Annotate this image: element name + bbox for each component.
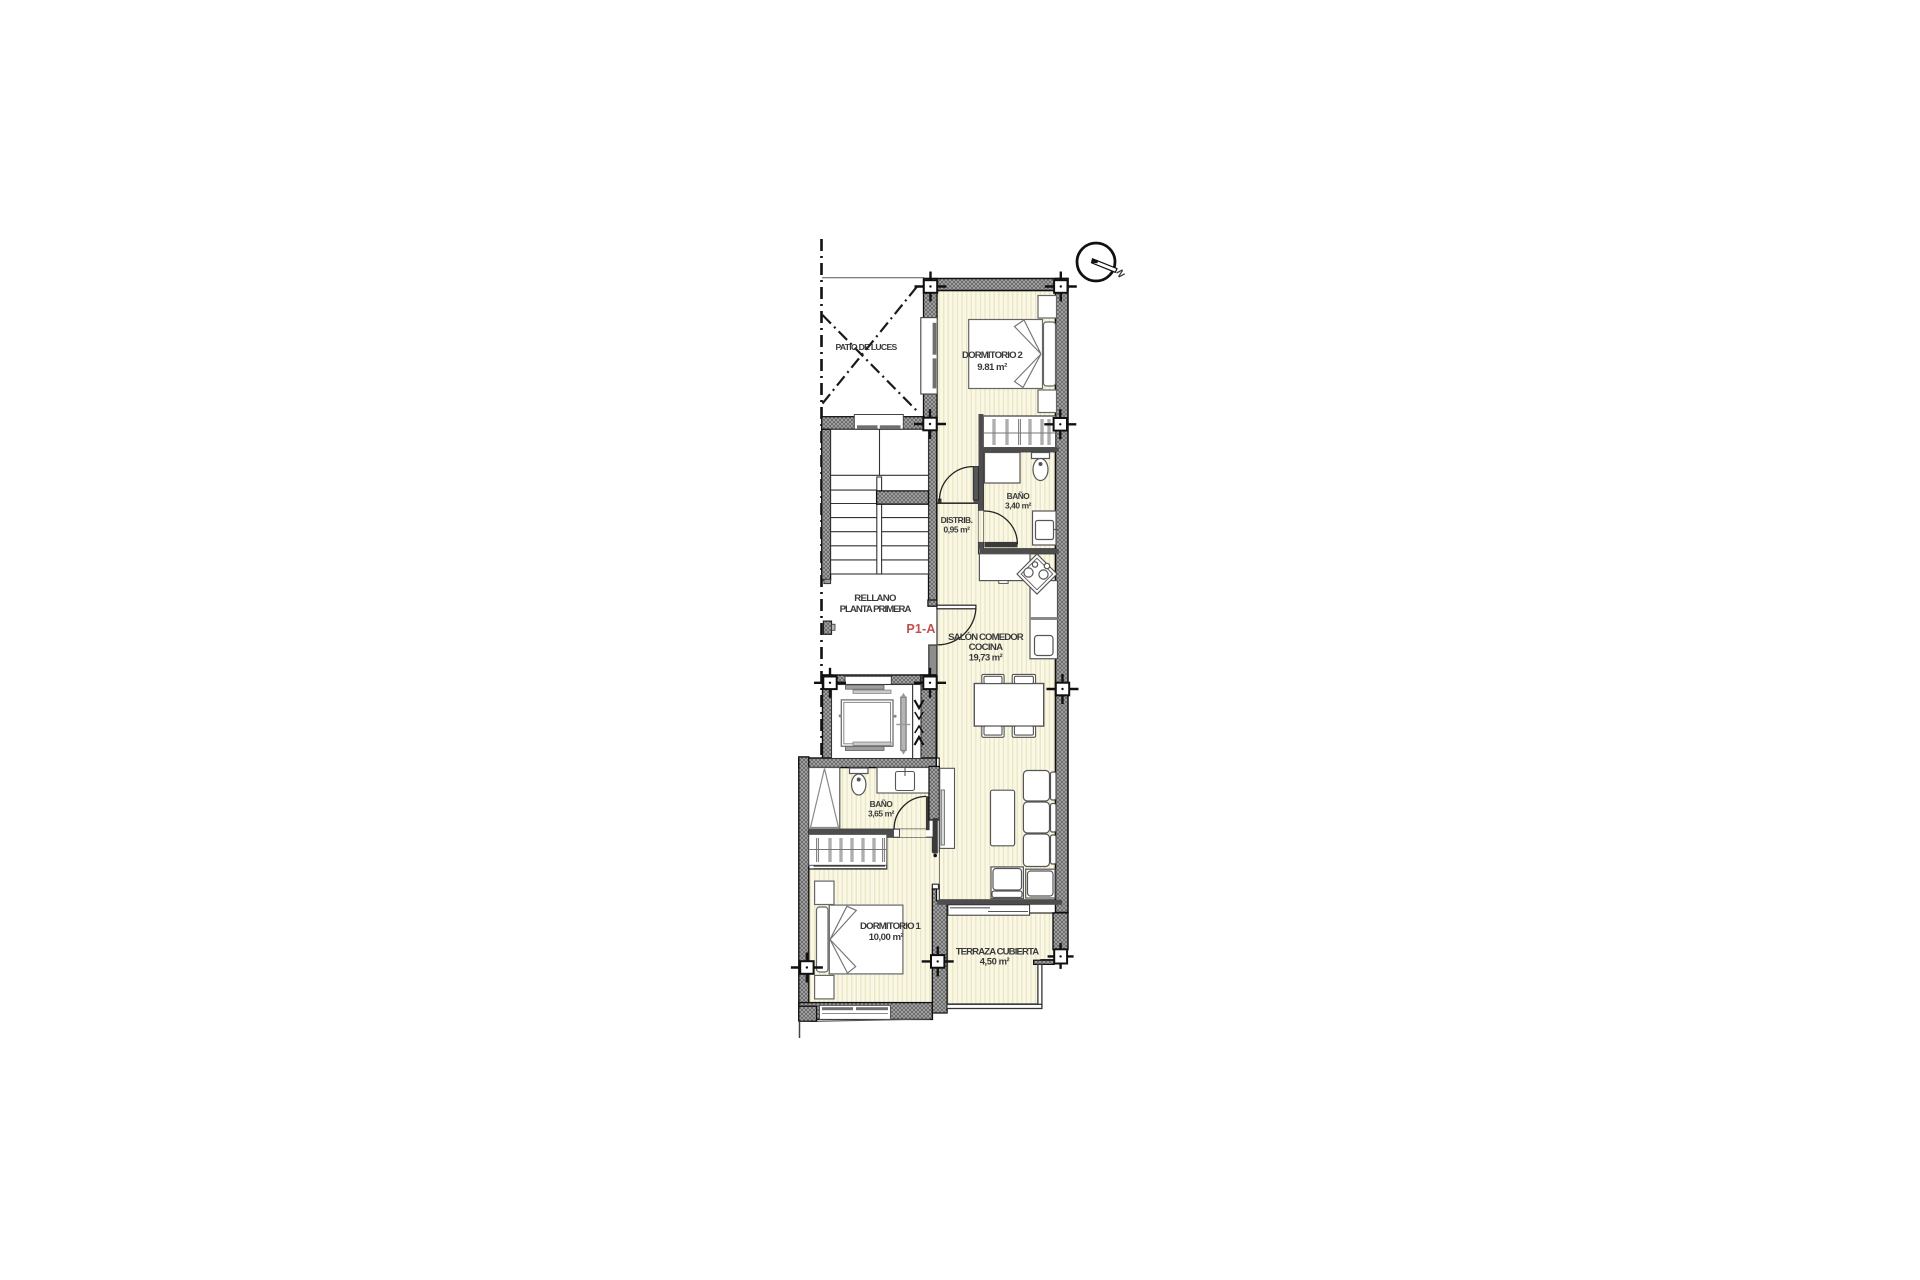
svg-text:BAÑO: BAÑO (870, 799, 894, 809)
svg-text:10,00 m²: 10,00 m² (869, 932, 904, 943)
svg-text:P1-A: P1-A (906, 622, 935, 636)
svg-text:9.81 m²: 9.81 m² (977, 362, 1007, 373)
svg-text:BAÑO: BAÑO (1007, 491, 1031, 501)
svg-text:PLANTA PRIMERA: PLANTA PRIMERA (840, 604, 912, 615)
svg-text:3,65 m²: 3,65 m² (868, 809, 895, 819)
svg-text:0,95 m²: 0,95 m² (943, 525, 970, 535)
svg-text:RELLANO: RELLANO (854, 593, 897, 604)
svg-text:19,73 m²: 19,73 m² (969, 652, 1003, 663)
svg-text:PATIO DE LUCES: PATIO DE LUCES (835, 342, 897, 352)
svg-text:DORMITORIO 1: DORMITORIO 1 (860, 921, 921, 932)
svg-text:4,50 m²: 4,50 m² (980, 956, 1010, 967)
svg-text:DORMITORIO 2: DORMITORIO 2 (962, 350, 1022, 361)
svg-text:3,40 m²: 3,40 m² (1005, 501, 1032, 511)
svg-text:DISTRIB.: DISTRIB. (941, 515, 973, 525)
